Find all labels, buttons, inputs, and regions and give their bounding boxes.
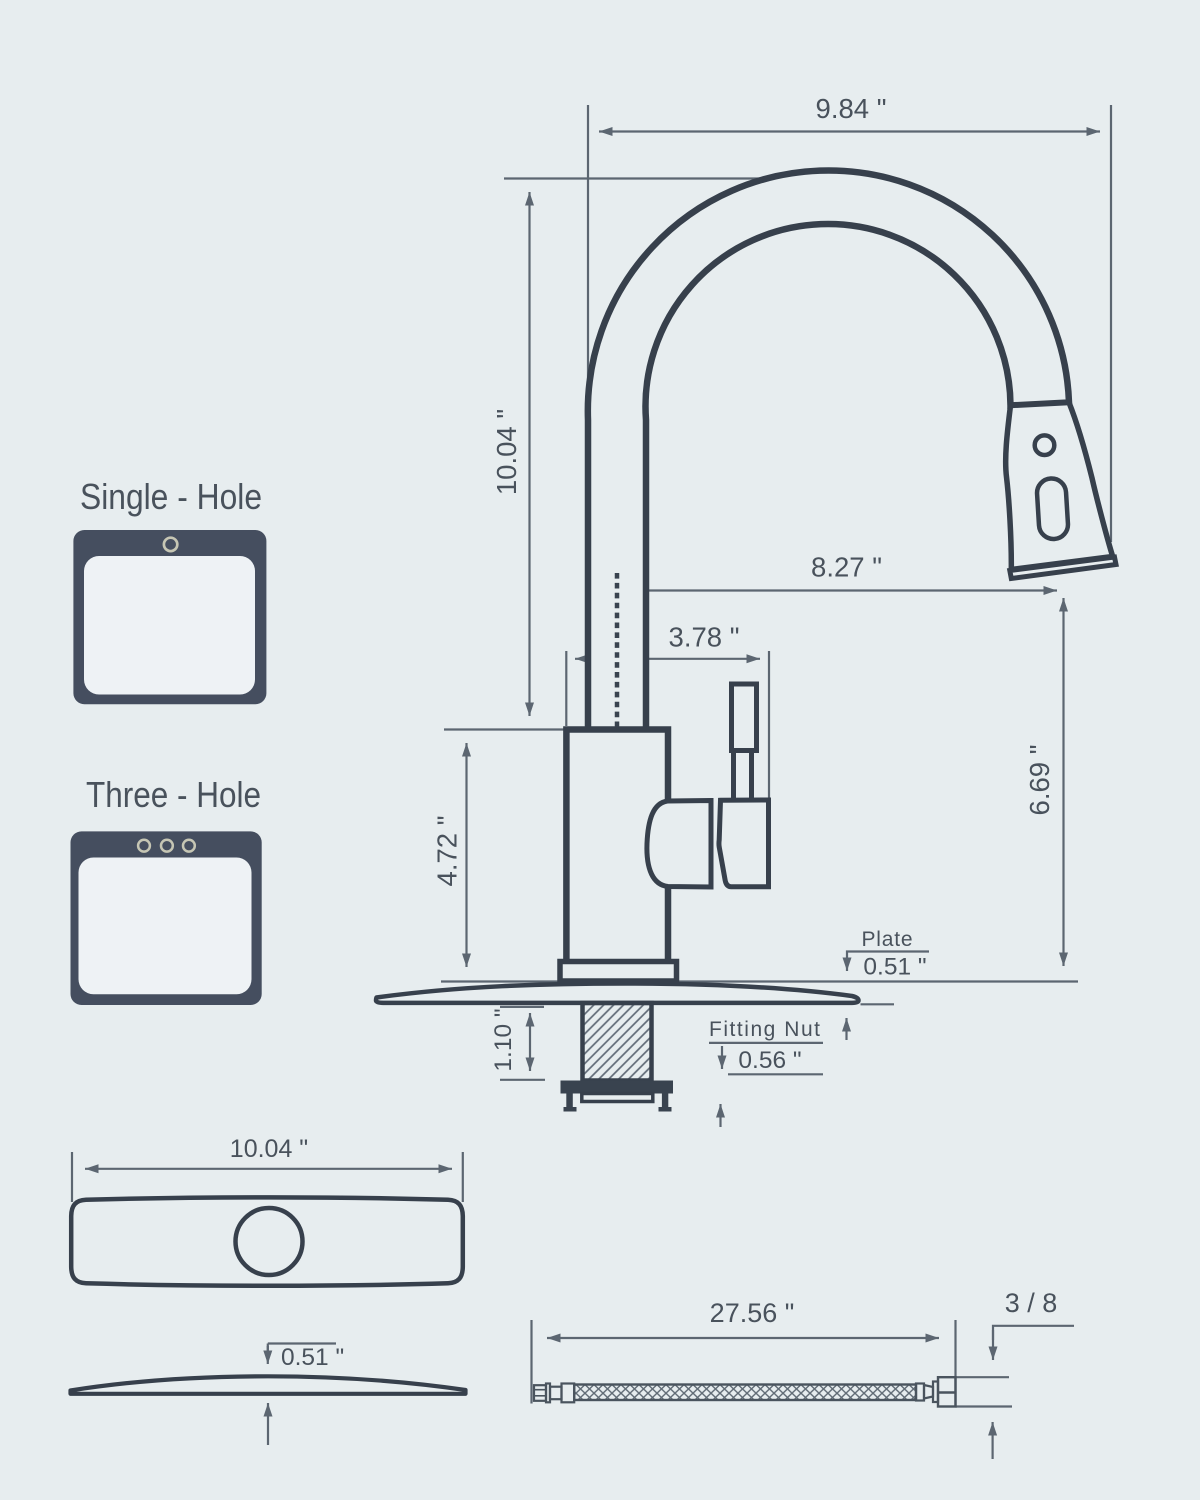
svg-text:Single - Hole: Single - Hole bbox=[80, 476, 262, 517]
svg-text:4.72 ": 4.72 " bbox=[432, 816, 463, 887]
svg-text:0.51 ": 0.51 " bbox=[863, 954, 926, 981]
svg-text:9.84 ": 9.84 " bbox=[816, 93, 887, 124]
svg-text:8.27 ": 8.27 " bbox=[811, 552, 882, 583]
svg-text:10.04 ": 10.04 " bbox=[230, 1135, 308, 1163]
svg-text:1.10 ": 1.10 " bbox=[490, 1008, 517, 1071]
svg-text:Fitting Nut: Fitting Nut bbox=[709, 1018, 820, 1041]
svg-text:27.56 ": 27.56 " bbox=[710, 1298, 795, 1328]
svg-text:0.56 ": 0.56 " bbox=[738, 1047, 801, 1074]
svg-text:3 / 8: 3 / 8 bbox=[1005, 1288, 1058, 1318]
svg-text:6.69 ": 6.69 " bbox=[1024, 745, 1055, 816]
svg-text:3.78 ": 3.78 " bbox=[669, 622, 740, 653]
svg-text:0.51 ": 0.51 " bbox=[281, 1344, 344, 1371]
svg-text:10.04 ": 10.04 " bbox=[491, 409, 522, 495]
svg-text:Plate: Plate bbox=[862, 928, 913, 951]
svg-text:Three - Hole: Three - Hole bbox=[86, 774, 261, 815]
